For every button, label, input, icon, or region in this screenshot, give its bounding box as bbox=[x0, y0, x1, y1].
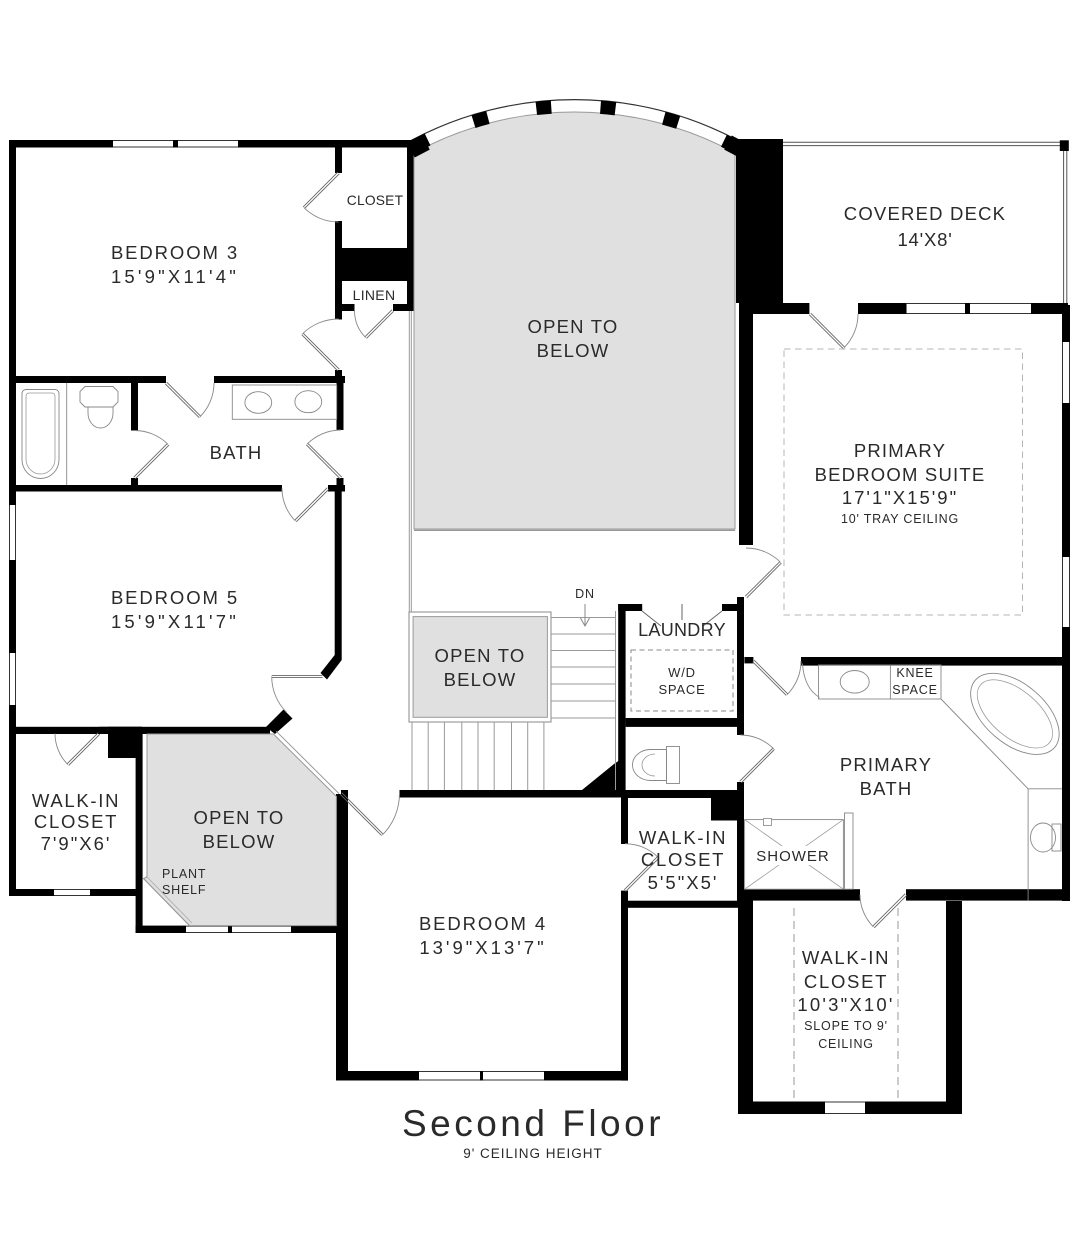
svg-text:15'9"X11'7": 15'9"X11'7" bbox=[111, 611, 239, 632]
svg-text:KNEE: KNEE bbox=[896, 666, 933, 680]
svg-text:OPEN TO: OPEN TO bbox=[528, 316, 619, 337]
svg-text:10' TRAY CEILING: 10' TRAY CEILING bbox=[841, 512, 959, 526]
svg-text:BELOW: BELOW bbox=[203, 831, 276, 852]
svg-text:PLANT: PLANT bbox=[162, 867, 206, 881]
svg-text:PRIMARY: PRIMARY bbox=[840, 754, 932, 775]
svg-text:SHELF: SHELF bbox=[162, 883, 206, 897]
svg-text:WALK-IN: WALK-IN bbox=[32, 790, 120, 811]
svg-text:WALK-IN: WALK-IN bbox=[802, 947, 890, 968]
svg-text:Second Floor: Second Floor bbox=[402, 1103, 664, 1144]
svg-text:WALK-IN: WALK-IN bbox=[639, 827, 727, 848]
svg-text:BEDROOM 3: BEDROOM 3 bbox=[111, 242, 239, 263]
svg-text:10'3"X10': 10'3"X10' bbox=[797, 994, 894, 1015]
svg-text:5'5"X5': 5'5"X5' bbox=[648, 872, 719, 893]
svg-text:PRIMARY: PRIMARY bbox=[854, 440, 946, 461]
svg-text:CLOSET: CLOSET bbox=[34, 811, 118, 832]
svg-text:CEILING: CEILING bbox=[818, 1037, 874, 1051]
svg-text:BEDROOM 5: BEDROOM 5 bbox=[111, 587, 239, 608]
svg-text:BEDROOM SUITE: BEDROOM SUITE bbox=[815, 464, 986, 485]
svg-text:CLOSET: CLOSET bbox=[804, 971, 888, 992]
svg-text:BATH: BATH bbox=[860, 778, 913, 799]
svg-text:LINEN: LINEN bbox=[353, 287, 396, 303]
svg-text:OPEN TO: OPEN TO bbox=[194, 807, 285, 828]
svg-text:15'9"X11'4": 15'9"X11'4" bbox=[111, 266, 239, 287]
svg-text:CLOSET: CLOSET bbox=[641, 849, 725, 870]
svg-text:COVERED DECK: COVERED DECK bbox=[844, 203, 1006, 224]
svg-text:BATH: BATH bbox=[210, 442, 263, 463]
svg-text:BELOW: BELOW bbox=[444, 669, 517, 690]
svg-text:LAUNDRY: LAUNDRY bbox=[638, 620, 726, 640]
svg-text:OPEN TO: OPEN TO bbox=[435, 645, 526, 666]
svg-text:SPACE: SPACE bbox=[658, 682, 705, 697]
svg-text:SHOWER: SHOWER bbox=[756, 848, 830, 865]
svg-text:DN: DN bbox=[575, 587, 595, 601]
svg-text:SPACE: SPACE bbox=[892, 683, 937, 697]
svg-text:BEDROOM 4: BEDROOM 4 bbox=[419, 913, 547, 934]
svg-text:BELOW: BELOW bbox=[537, 340, 610, 361]
svg-text:W/D: W/D bbox=[668, 665, 696, 680]
svg-text:7'9"X6': 7'9"X6' bbox=[41, 833, 112, 854]
svg-text:SLOPE TO 9': SLOPE TO 9' bbox=[804, 1019, 888, 1033]
svg-text:13'9"X13'7": 13'9"X13'7" bbox=[419, 937, 546, 958]
svg-text:9' CEILING HEIGHT: 9' CEILING HEIGHT bbox=[463, 1146, 603, 1161]
svg-text:17'1"X15'9": 17'1"X15'9" bbox=[842, 487, 958, 508]
svg-text:CLOSET: CLOSET bbox=[347, 193, 404, 208]
svg-text:14'X8': 14'X8' bbox=[897, 229, 952, 250]
